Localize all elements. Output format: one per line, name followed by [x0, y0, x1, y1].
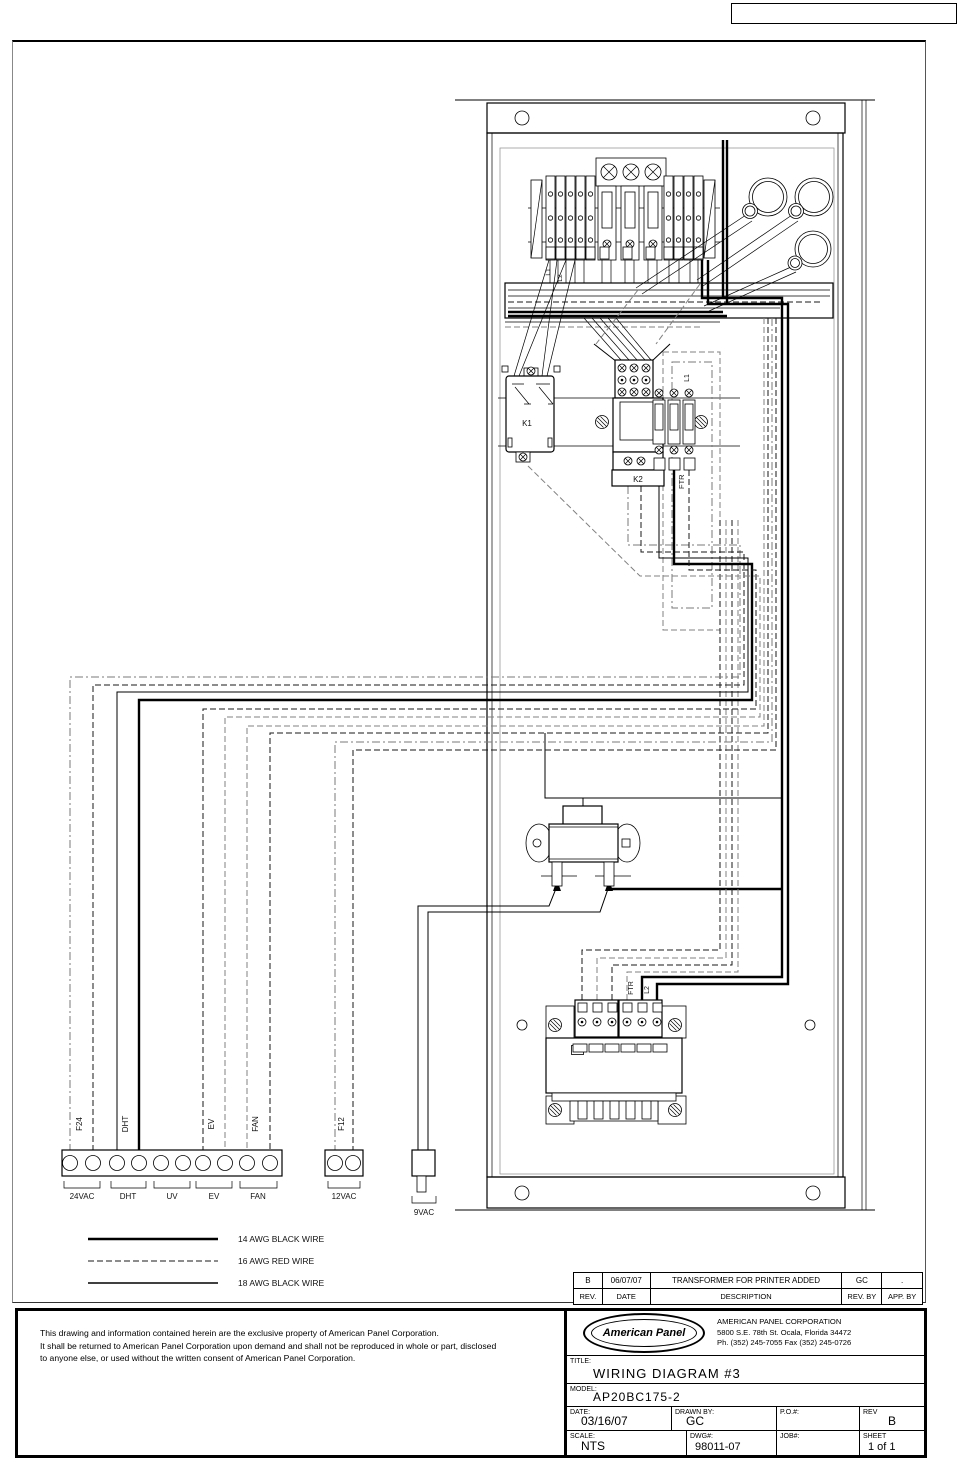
- terminal-group-fan: FAN: [250, 1192, 266, 1201]
- revision-rev-by: GC: [842, 1273, 882, 1288]
- wire-flag-l2-strip: L2: [557, 274, 564, 282]
- k1-body: [506, 376, 554, 452]
- group-brace: [328, 1181, 360, 1188]
- rev-cell: REV B: [860, 1407, 924, 1430]
- terminal-group-dht: DHT: [120, 1192, 137, 1201]
- terminal: [218, 1156, 233, 1171]
- rail-screw-icon: [596, 416, 609, 429]
- legend-label-14awg: 14 AWG BLACK WIRE: [238, 1234, 324, 1244]
- terminal: [110, 1156, 125, 1171]
- bottom-mounting-flange: [487, 1177, 845, 1208]
- fuse-icon: [623, 164, 639, 180]
- terminal-group-uv: UV: [166, 1192, 178, 1201]
- terminal: [63, 1156, 78, 1171]
- title-block: American Panel AMERICAN PANEL CORPORATIO…: [567, 1311, 924, 1455]
- sheet-label: SHEET: [863, 1433, 886, 1440]
- bottom-terminal-strip-1: [62, 1150, 282, 1188]
- drawing-title: WIRING DIAGRAM #3: [593, 1366, 741, 1381]
- ftr-fuse-block: [653, 389, 695, 470]
- terminal: [328, 1156, 343, 1171]
- transformer-t1: [526, 806, 640, 886]
- wire-label-dht: DHT: [121, 1116, 130, 1133]
- revision-description: TRANSFORMER FOR PRINTER ADDED: [651, 1273, 843, 1288]
- group-braces: [64, 1181, 277, 1188]
- date-row: DATE: 03/16/07 DRAWN BY: GC P.O.#: REV B: [567, 1407, 924, 1431]
- screw-icon: [669, 1019, 682, 1032]
- scale-row: SCALE: NTS DWG#: 98011-07 JOB#: SHEET 1 …: [567, 1431, 924, 1455]
- dwg-cell: DWG#: 98011-07: [687, 1431, 777, 1455]
- title-row: TITLE: WIRING DIAGRAM #3: [567, 1356, 924, 1384]
- drawn-by-value: GC: [686, 1414, 704, 1428]
- revision-rev: B: [574, 1273, 603, 1288]
- rail-screw-icon: [695, 416, 708, 429]
- model-row: MODEL: AP20BC175-2: [567, 1384, 924, 1406]
- legend-label-16awg: 16 AWG RED WIRE: [238, 1256, 315, 1266]
- rev-value: B: [888, 1414, 896, 1428]
- plate-hole: [805, 1020, 815, 1030]
- rev-label: REV: [863, 1409, 877, 1416]
- revision-header-description: DESCRIPTION: [651, 1289, 843, 1304]
- plug-9vac: [412, 1150, 436, 1203]
- wire-label-ev: EV: [207, 1118, 216, 1129]
- scale-value: NTS: [581, 1439, 605, 1453]
- revision-row: B 06/07/07 TRANSFORMER FOR PRINTER ADDED…: [574, 1273, 922, 1288]
- wiring: [70, 140, 830, 1150]
- k1-relay: [502, 366, 560, 462]
- dwg-value: 98011-07: [695, 1441, 741, 1453]
- po-cell: P.O.#:: [777, 1407, 860, 1430]
- transformer-t2: [546, 1000, 686, 1124]
- wire-label-fan: FAN: [251, 1116, 260, 1132]
- american-panel-logo: American Panel: [583, 1313, 705, 1353]
- disclaimer-line: to anyone else, or used without the writ…: [40, 1352, 554, 1365]
- revision-header-rev: REV.: [574, 1289, 603, 1304]
- company-address: 5800 S.E. 78th St. Ocala, Florida 34472: [717, 1328, 851, 1339]
- terminal: [196, 1156, 211, 1171]
- gland-icon: [743, 178, 788, 219]
- top-mounting-flange: [487, 103, 845, 133]
- wire-flag-ftr-t2: FTR: [628, 981, 635, 995]
- terminal-group-24vac: 24VAC: [70, 1192, 95, 1201]
- title-label: TITLE:: [570, 1358, 591, 1365]
- revision-header-app-by: APP. BY: [882, 1289, 922, 1304]
- sheet-cell: SHEET 1 of 1: [860, 1431, 924, 1455]
- terminal-group-ev: EV: [209, 1192, 220, 1201]
- sheet-value: 1 of 1: [868, 1441, 896, 1453]
- terminal: [263, 1156, 278, 1171]
- revision-app-by: .: [882, 1273, 922, 1288]
- company-info: AMERICAN PANEL CORPORATION 5800 S.E. 78t…: [717, 1317, 851, 1349]
- wire-flag: [554, 366, 560, 372]
- date-cell: DATE: 03/16/07: [567, 1407, 672, 1430]
- mounting-hole: [515, 111, 529, 125]
- screw-icon: [519, 453, 527, 461]
- terminal: [132, 1156, 147, 1171]
- bottom-terminal-strip-2: [325, 1150, 363, 1188]
- wiring-diagram-sheet: { "colors": {"line": "#000000", "gray_li…: [0, 0, 962, 1470]
- screw-icon: [549, 1104, 562, 1117]
- revision-date: 06/07/07: [603, 1273, 651, 1288]
- wire-flag-l1: L1: [684, 374, 691, 382]
- company-name: AMERICAN PANEL CORPORATION: [717, 1317, 851, 1328]
- terminal-group-12vac: 12VAC: [332, 1192, 357, 1201]
- wire-flag-l1-strip: L1: [545, 268, 552, 276]
- mounting-hole: [806, 111, 820, 125]
- top-terminal-strip: [528, 158, 720, 260]
- bottom-block: This drawing and information contained h…: [15, 1308, 927, 1458]
- wiring-diagram-canvas: K1 K2 FTR L1 L1 L2 FTR L2 F24 DHT EV FAN…: [0, 0, 962, 1470]
- gland-icon: [788, 231, 831, 270]
- screw-icon: [669, 1104, 682, 1117]
- screw-icon: [637, 457, 645, 465]
- model-value: AP20BC175-2: [593, 1390, 681, 1404]
- wire-label-f24: F24: [75, 1117, 84, 1131]
- screw-icon: [527, 367, 535, 375]
- wire-flag: [502, 366, 508, 372]
- dwg-label: DWG#:: [690, 1433, 713, 1440]
- job-label: JOB#:: [780, 1433, 799, 1440]
- revision-header-row: REV. DATE DESCRIPTION REV. BY APP. BY: [574, 1288, 922, 1304]
- company-phone: Ph. (352) 245-7055 Fax (352) 245-0726: [717, 1338, 851, 1349]
- k1-label: K1: [522, 419, 532, 428]
- terminal: [240, 1156, 255, 1171]
- group-brace: [412, 1196, 436, 1203]
- scale-cell: SCALE: NTS: [567, 1431, 687, 1455]
- revision-header-rev-by: REV. BY: [842, 1289, 882, 1304]
- logo-text: American Panel: [603, 1327, 686, 1339]
- terminal: [176, 1156, 191, 1171]
- wire-label-f12: F12: [337, 1117, 346, 1131]
- wire-flag-l2-t2: L2: [644, 986, 651, 994]
- mounting-hole: [806, 1186, 820, 1200]
- t1-core: [549, 824, 618, 862]
- title-block-logo-row: American Panel AMERICAN PANEL CORPORATIO…: [567, 1311, 924, 1356]
- disclaimer: This drawing and information contained h…: [18, 1311, 567, 1455]
- terminal: [346, 1156, 361, 1171]
- k2-label: K2: [633, 475, 643, 484]
- terminal: [154, 1156, 169, 1171]
- plate-hole: [517, 1020, 527, 1030]
- mounting-hole: [515, 1186, 529, 1200]
- ftr-label: FTR: [677, 474, 686, 489]
- date-value: 03/16/07: [581, 1414, 628, 1428]
- disclaimer-line: It shall be returned to American Panel C…: [40, 1340, 554, 1353]
- drawn-by-cell: DRAWN BY: GC: [672, 1407, 777, 1430]
- screw-icon: [549, 1019, 562, 1032]
- terminal: [86, 1156, 101, 1171]
- revision-table: B 06/07/07 TRANSFORMER FOR PRINTER ADDED…: [573, 1272, 923, 1305]
- po-label: P.O.#:: [780, 1409, 799, 1416]
- disclaimer-line: This drawing and information contained h…: [40, 1327, 554, 1340]
- screw-icon: [624, 457, 632, 465]
- wire-legend: [88, 1239, 218, 1283]
- gland-icon: [789, 178, 834, 219]
- fuse-icon: [645, 164, 661, 180]
- terminal-group-9vac: 9VAC: [414, 1208, 435, 1217]
- legend-label-18awg: 18 AWG BLACK WIRE: [238, 1278, 324, 1288]
- job-cell: JOB#:: [777, 1431, 860, 1455]
- fuse-icon: [601, 164, 617, 180]
- revision-header-date: DATE: [603, 1289, 651, 1304]
